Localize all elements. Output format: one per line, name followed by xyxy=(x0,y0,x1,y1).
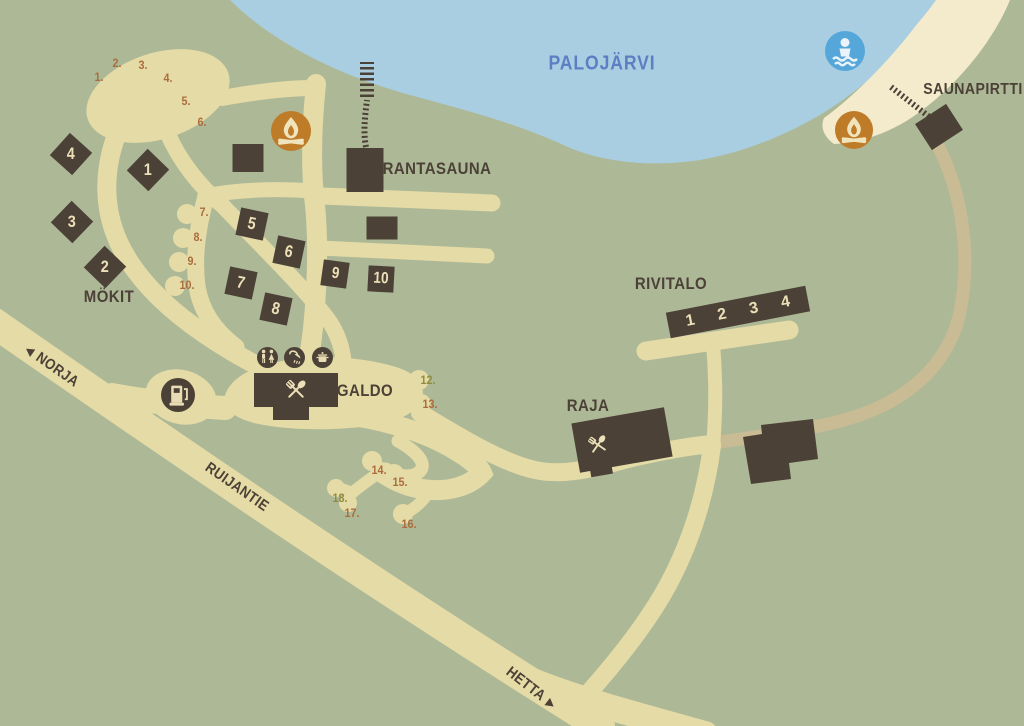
lake-label-text: PALOJÄRVI xyxy=(548,53,655,75)
pitch-7: 7. xyxy=(199,205,208,219)
cottage-number: 4 xyxy=(67,144,75,164)
map-canvas xyxy=(0,0,1024,726)
cottage-5: 5 xyxy=(235,207,268,240)
shower-icon xyxy=(284,347,305,368)
campfire-icon xyxy=(835,111,873,149)
pitch-8: 8. xyxy=(193,230,202,244)
rivitalo-unit: 1 xyxy=(684,312,696,331)
fuel-station-icon xyxy=(161,378,195,412)
rivitalo-unit: 2 xyxy=(716,305,728,324)
pitch-12: 12. xyxy=(420,373,435,387)
saunapirtti-label-text: SAUNAPIRTTI xyxy=(923,81,1022,98)
campfire-icon xyxy=(271,111,311,151)
restaurant-icon xyxy=(582,429,613,460)
campground-map: { "lake": { "label": "PALOJÄRVI" }, "pla… xyxy=(0,0,1024,726)
lake-label: PALOJÄRVI xyxy=(548,53,655,76)
raja-label-text: RAJA xyxy=(567,396,610,415)
rantasauna-label-text: RANTASAUNA xyxy=(383,159,492,178)
rantasauna-building xyxy=(347,148,384,192)
cottage-number: 5 xyxy=(246,213,258,234)
cottage-number: 8 xyxy=(270,298,282,319)
restaurant-icon xyxy=(281,375,311,405)
cottage-number: 2 xyxy=(101,257,109,277)
wc-icon xyxy=(257,347,278,368)
cottage-9: 9 xyxy=(320,259,349,288)
raja-label: RAJA xyxy=(567,396,610,416)
pitch-9: 9. xyxy=(187,254,196,268)
outbuilding-small-1 xyxy=(233,144,264,172)
rivitalo-unit: 3 xyxy=(748,299,760,318)
rivitalo-label: RIVITALO xyxy=(635,274,707,294)
pitch-18: 18. xyxy=(332,491,347,505)
pitch-5: 5. xyxy=(181,94,190,108)
pitch-10: 10. xyxy=(179,278,194,292)
mokit-label: MÖKIT xyxy=(84,287,134,307)
cottage-7: 7 xyxy=(224,266,257,299)
rivitalo-unit: 4 xyxy=(780,293,792,312)
saunapirtti-label: SAUNAPIRTTI xyxy=(923,81,1022,99)
swimming-area-icon xyxy=(825,31,865,71)
outbuilding-small-2 xyxy=(367,217,398,240)
rivitalo-label-text: RIVITALO xyxy=(635,274,707,293)
cottage-number: 3 xyxy=(68,212,76,232)
pitch-17: 17. xyxy=(344,506,359,520)
cottage-number: 9 xyxy=(330,265,340,284)
cottage-6: 6 xyxy=(272,235,305,268)
cottage-number: 7 xyxy=(235,272,247,293)
galdo-label: GALDO xyxy=(337,381,393,401)
pitch-6: 6. xyxy=(197,115,206,129)
galdo-building-annex xyxy=(273,406,309,420)
pitch-13: 13. xyxy=(422,397,437,411)
mokit-label-text: MÖKIT xyxy=(84,287,134,306)
pitch-14: 14. xyxy=(371,463,386,477)
pitch-1: 1. xyxy=(94,70,103,84)
pitch-2: 2. xyxy=(112,56,121,70)
cottage-number: 1 xyxy=(144,160,152,180)
cottage-10: 10 xyxy=(367,265,394,292)
cooking-pot-icon xyxy=(312,347,333,368)
cottage-number: 6 xyxy=(283,241,295,262)
cottage-number: 10 xyxy=(373,270,389,289)
pitch-16: 16. xyxy=(401,517,416,531)
pitch-4: 4. xyxy=(163,71,172,85)
galdo-building xyxy=(254,373,338,407)
galdo-label-text: GALDO xyxy=(337,381,393,400)
pitch-3: 3. xyxy=(138,58,147,72)
rantasauna-label: RANTASAUNA xyxy=(383,159,492,179)
pitch-15: 15. xyxy=(392,475,407,489)
cottage-8: 8 xyxy=(259,292,292,325)
